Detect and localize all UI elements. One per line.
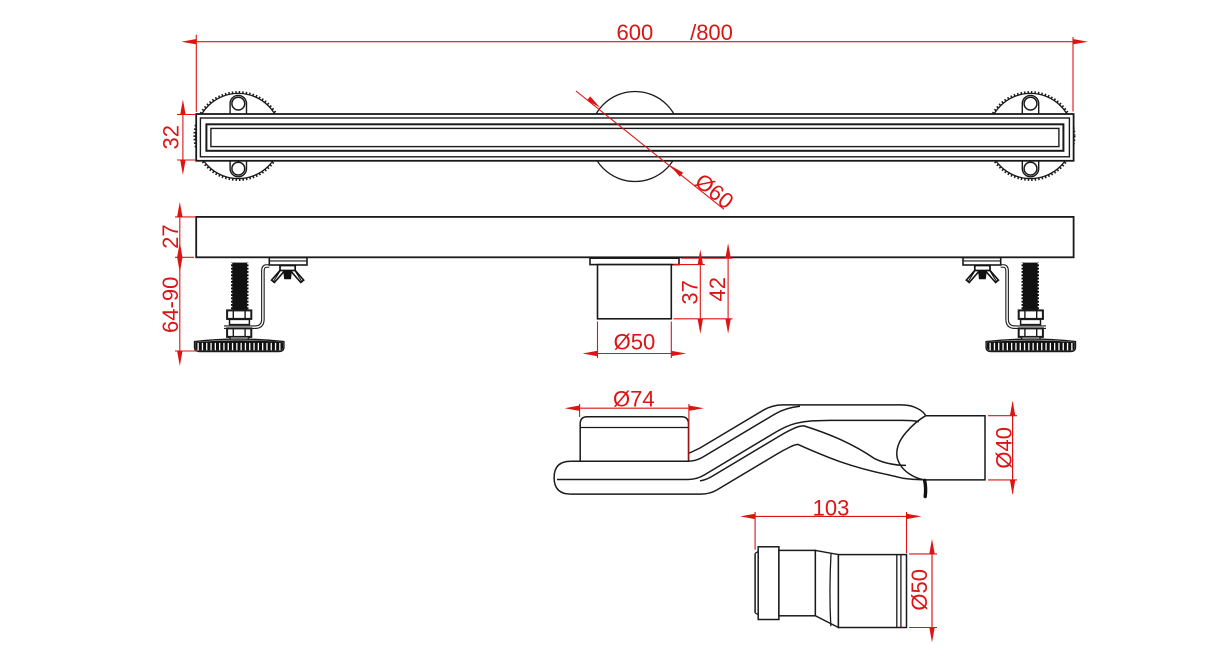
svg-text:Ø40: Ø40 (992, 427, 1017, 469)
svg-text:600: 600 (617, 20, 654, 45)
svg-text:32: 32 (159, 125, 184, 149)
svg-text:/800: /800 (690, 20, 733, 45)
svg-text:Ø74: Ø74 (613, 387, 655, 412)
svg-text:42: 42 (705, 277, 730, 301)
svg-text:27: 27 (158, 224, 183, 248)
svg-text:64-90: 64-90 (158, 277, 183, 333)
svg-text:37: 37 (677, 280, 702, 304)
svg-text:103: 103 (813, 496, 850, 521)
svg-text:Ø50: Ø50 (907, 569, 932, 611)
svg-text:Ø50: Ø50 (614, 330, 656, 355)
